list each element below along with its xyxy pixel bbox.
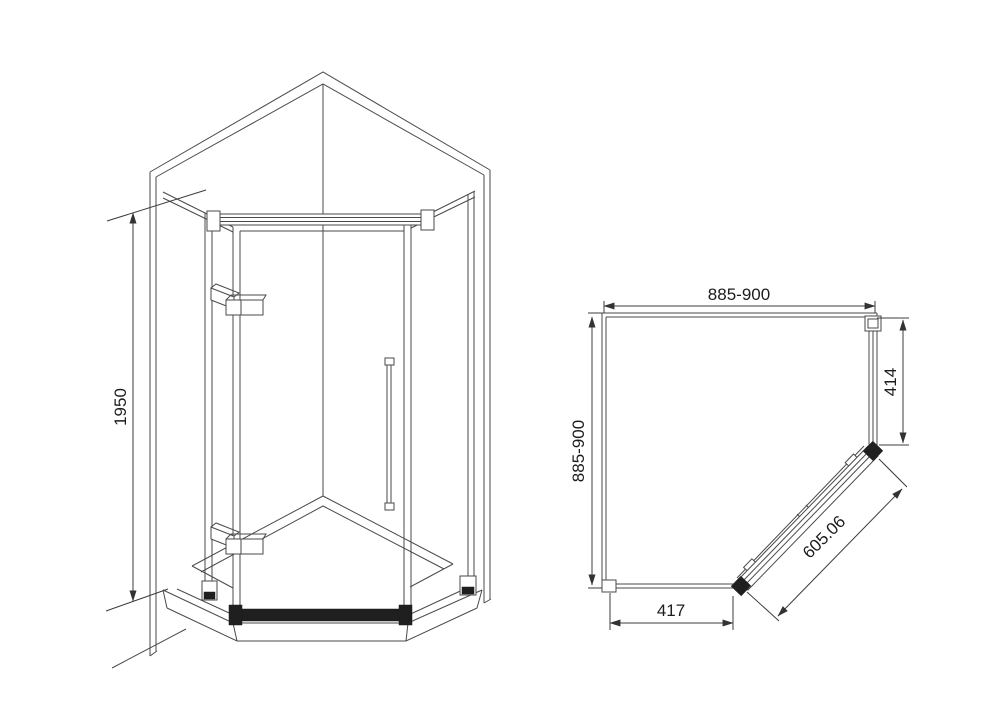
side-panel-dimension: 414 [877, 318, 909, 445]
wall-profile-end [602, 580, 616, 592]
plan-door-slab [731, 441, 883, 596]
front-isometric-view: 1950 [106, 72, 491, 668]
technical-drawing-canvas: 1950 [0, 0, 1000, 707]
right-fixed-panel [411, 191, 476, 595]
height-dimension-label: 1950 [111, 388, 130, 426]
door-hinge-lower [211, 523, 266, 554]
depth-dimension-label: 885-900 [569, 420, 588, 482]
bar-glass-clamp [207, 211, 220, 231]
door-handle [385, 358, 394, 510]
side-panel-dimension-label: 414 [881, 368, 900, 396]
width-dimension-top: 885-900 [604, 285, 875, 313]
room-walls [112, 72, 491, 668]
plan-view: 885-900 885-900 414 605.06 4 [569, 285, 909, 630]
door-diagonal-dimension: 605.06 [747, 459, 907, 621]
shower-enclosure-drawing: 1950 [0, 0, 1000, 707]
bar-glass-clamp [421, 210, 434, 230]
depth-dimension-left: 885-900 [569, 313, 602, 588]
front-panel-dimension: 417 [610, 593, 733, 630]
front-panel-dimension-label: 417 [657, 601, 685, 620]
width-dimension-label: 885-900 [708, 285, 770, 304]
door-hinge-upper [211, 284, 266, 315]
door-bottom-seal [233, 609, 411, 621]
top-support-bar [207, 210, 434, 231]
plan-walls [602, 313, 881, 592]
hinged-door [229, 221, 412, 625]
